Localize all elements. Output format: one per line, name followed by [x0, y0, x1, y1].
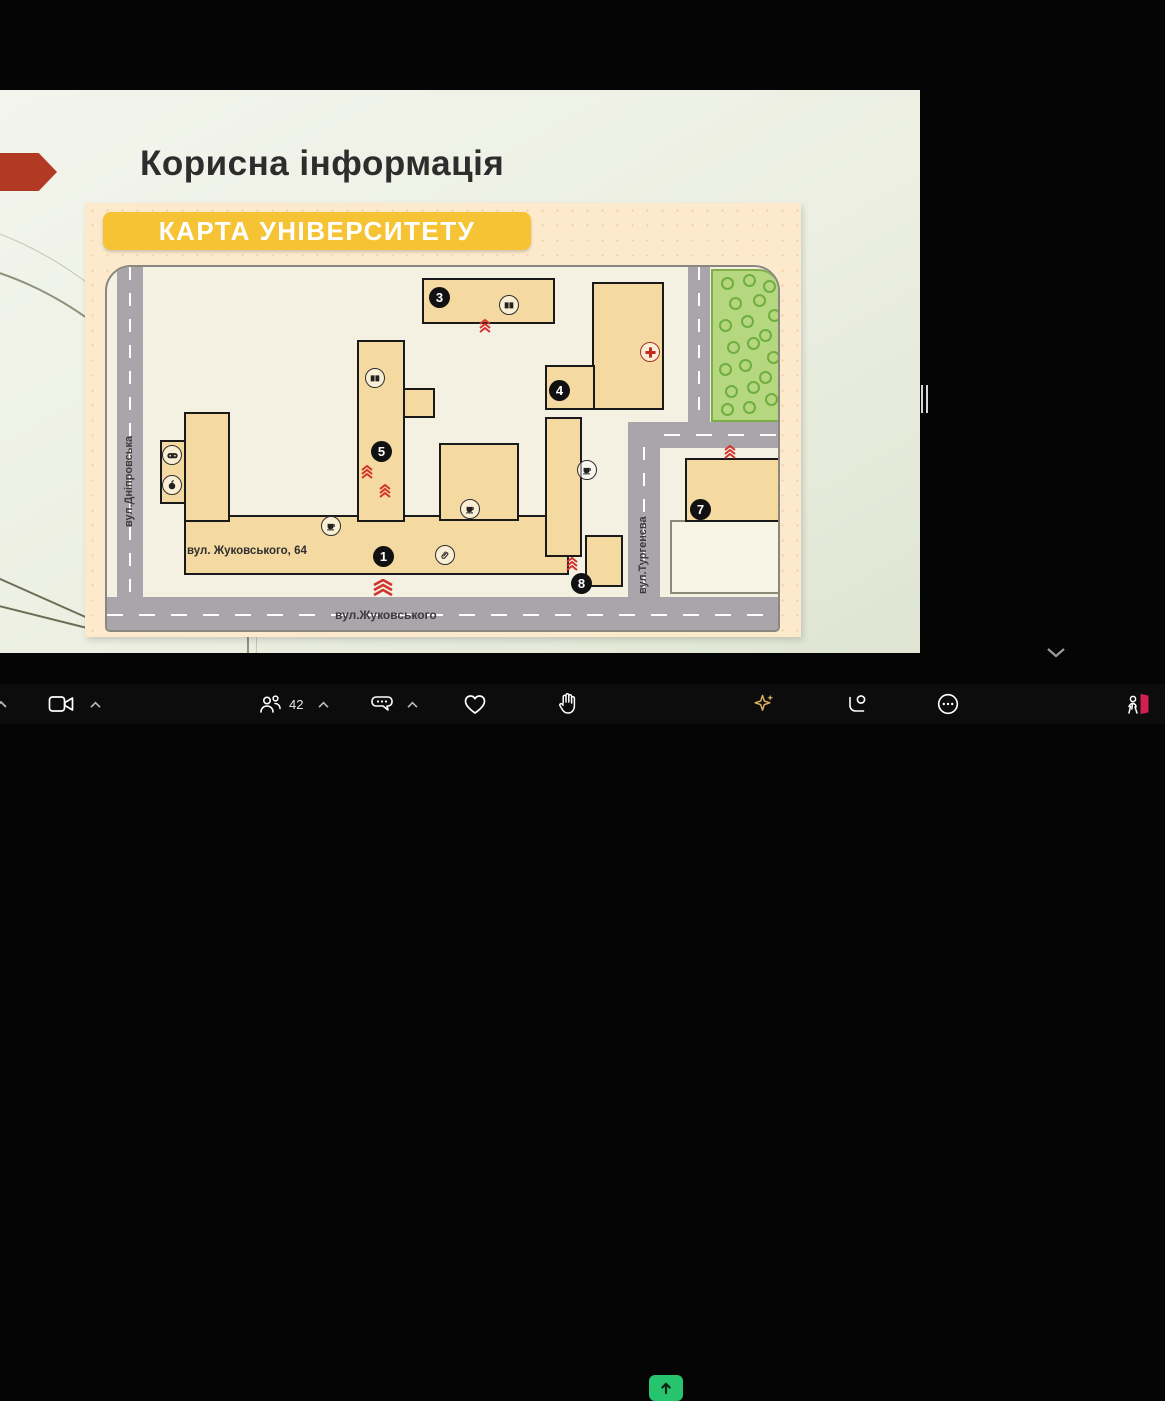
park-area [711, 269, 780, 422]
presentation-slide: Корисна інформація КАРТА УНІВЕРСИТЕТУ [0, 90, 920, 653]
chevron-up-icon [0, 699, 8, 709]
participants-icon [258, 694, 283, 715]
building-5-wing [403, 388, 435, 418]
building-1-west-wing [184, 412, 230, 522]
audio-menu-caret[interactable] [0, 684, 8, 724]
entrance-chevrons-icon [722, 445, 738, 459]
coffee-icon [460, 499, 480, 519]
main-entrance-chevrons-icon [370, 579, 396, 597]
ai-companion-button[interactable] [752, 684, 776, 724]
building-south-east [545, 417, 582, 557]
heart-icon [463, 694, 487, 715]
participants-button[interactable]: 42 [258, 684, 303, 724]
paperclip-icon [435, 545, 455, 565]
participants-menu-caret[interactable] [317, 684, 330, 724]
library-book-icon [365, 368, 385, 388]
chat-icon [368, 693, 394, 715]
leave-meeting-button[interactable] [1124, 684, 1150, 724]
chevron-up-icon [406, 700, 419, 709]
map-marker-1: 1 [373, 546, 394, 567]
map-marker-7: 7 [690, 499, 711, 520]
leave-meeting-icon [1124, 692, 1150, 716]
street-label-zhukovskoho: вул.Жуковського [335, 608, 437, 622]
sparkle-icon [752, 692, 776, 716]
red-arrow-bullet [0, 153, 57, 191]
campus-map: 3 5 4 1 8 7 [105, 265, 780, 632]
entrance-chevrons-icon [477, 319, 493, 333]
participants-count: 42 [289, 697, 303, 712]
video-camera-icon [48, 694, 75, 714]
meeting-toolbar: 42 [0, 684, 1165, 724]
road-dashes [698, 267, 700, 427]
map-marker-8: 8 [571, 573, 592, 594]
chat-button[interactable] [368, 684, 394, 724]
map-marker-4: 4 [549, 380, 570, 401]
street-label-turhenieva: вул.Тургенєва [637, 489, 649, 594]
collapse-sidebar-button[interactable] [1044, 646, 1074, 666]
coffee-icon [577, 460, 597, 480]
share-arrow-up-icon [658, 1380, 674, 1396]
video-button[interactable] [48, 684, 75, 724]
share-screen-button[interactable] [649, 1375, 683, 1401]
gamepad-icon [162, 445, 182, 465]
apps-button[interactable] [845, 684, 869, 724]
raise-hand-button[interactable] [557, 684, 579, 724]
panel-resize-handle[interactable] [920, 385, 930, 413]
reactions-button[interactable] [463, 684, 487, 724]
entrance-chevrons-icon [359, 465, 375, 479]
building-7-outline [670, 520, 780, 594]
more-ellipsis-icon [936, 692, 960, 716]
street-label-dniprovska: вул.Дніпровська [123, 417, 135, 527]
video-menu-caret[interactable] [89, 684, 102, 724]
chevron-up-icon [89, 700, 102, 709]
apps-icon [845, 693, 869, 715]
medical-cross-icon [640, 342, 660, 362]
raise-hand-icon [557, 692, 579, 716]
participants-sidebar: Олексій Кузькін Сергій ТУРПАК Алла Каплу… [975, 0, 1165, 724]
chevron-up-icon [317, 700, 330, 709]
apple-icon [162, 475, 182, 495]
map-banner: КАРТА УНІВЕРСИТЕТУ [103, 212, 531, 250]
entrance-chevrons-icon [377, 484, 393, 498]
more-button[interactable] [936, 684, 960, 724]
map-marker-5: 5 [371, 441, 392, 462]
chat-menu-caret[interactable] [406, 684, 419, 724]
map-marker-3: 3 [429, 287, 450, 308]
library-book-icon [499, 295, 519, 315]
chevron-down-icon [1044, 646, 1068, 660]
road-dashes [107, 614, 780, 616]
building-address-label: вул. Жуковського, 64 [187, 545, 307, 557]
entrance-chevrons-icon [564, 557, 580, 571]
slide-title: Корисна інформація [140, 144, 504, 184]
coffee-icon [321, 516, 341, 536]
